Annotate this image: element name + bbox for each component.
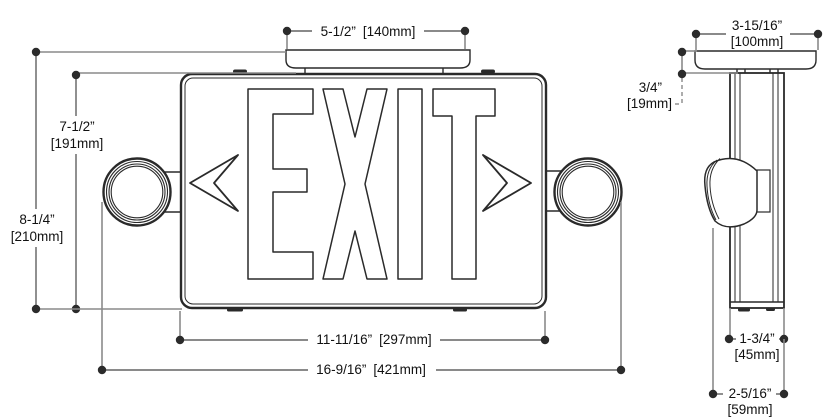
dim-label-canopy-height-mm: [19mm] [627,96,672,111]
side-bottom-tab-right [766,308,775,311]
lamp-head-left [104,159,171,226]
dim-label-front-canopy-width: 5-1/2”[140mm] [321,24,416,39]
dim-side-canopy-width: 3-15/16” [100mm] [692,18,822,50]
top-screw-tab-right [481,70,495,74]
front-view: EXIT [104,50,622,312]
dim-label-canopy-height-in: 3/4” [639,80,662,95]
dim-label-sign-height-in: 7-1/2” [59,119,94,134]
drawing-canvas: EXIT [0,0,829,419]
dim-label-overall-depth-in: 2-5/16” [729,386,772,401]
dim-label-overall-height-mm: [210mm] [11,229,64,244]
dim-label-sign-height-mm: [191mm] [51,136,104,151]
dim-sign-width: 11-11/16”[297mm] [176,311,549,347]
dim-label-overall-height-in: 8-1/4” [19,212,54,227]
dim-label-overall-width: 16-9/16”[421mm] [316,362,426,377]
lamp-head-right [555,159,622,226]
dim-body-depth: 1-3/4” [45mm] [725,308,788,362]
dim-front-canopy-width: 5-1/2”[140mm] [283,24,469,49]
dim-label-overall-depth-mm: [59mm] [727,402,772,417]
dim-label-side-canopy-width-in: 3-15/16” [732,18,782,33]
dim-label-side-canopy-width-mm: [100mm] [731,34,784,49]
letter-I [398,89,422,279]
front-canopy [286,50,470,74]
side-canopy [695,51,816,74]
dim-label-sign-width: 11-11/16”[297mm] [316,332,431,347]
dim-label-body-depth-in: 1-3/4” [739,331,774,346]
exit-sign-dimensional-drawing: EXIT [0,0,829,419]
dim-label-body-depth-mm: [45mm] [734,347,779,362]
bottom-tab-left [227,308,243,312]
bottom-tab-right [453,308,467,312]
side-bottom-tab-left [738,308,750,312]
